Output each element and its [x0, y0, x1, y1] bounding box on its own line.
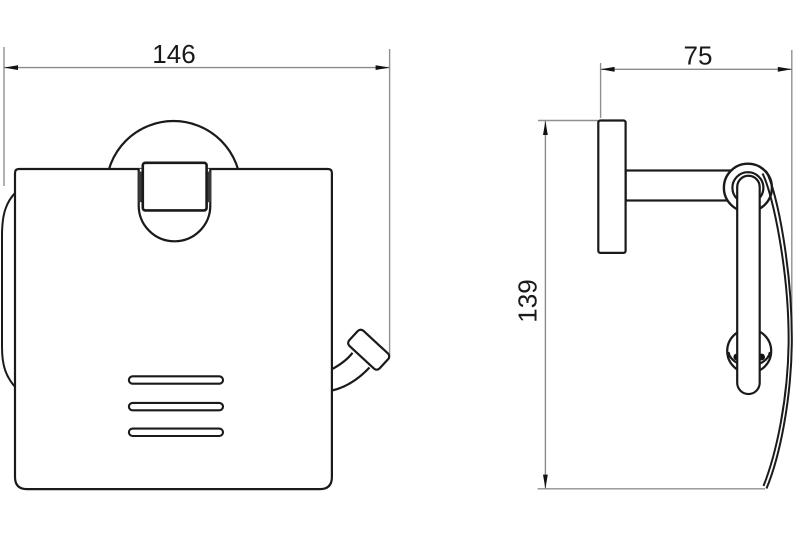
svg-text:75: 75	[684, 41, 713, 71]
svg-text:146: 146	[152, 39, 195, 69]
svg-text:139: 139	[513, 279, 543, 322]
